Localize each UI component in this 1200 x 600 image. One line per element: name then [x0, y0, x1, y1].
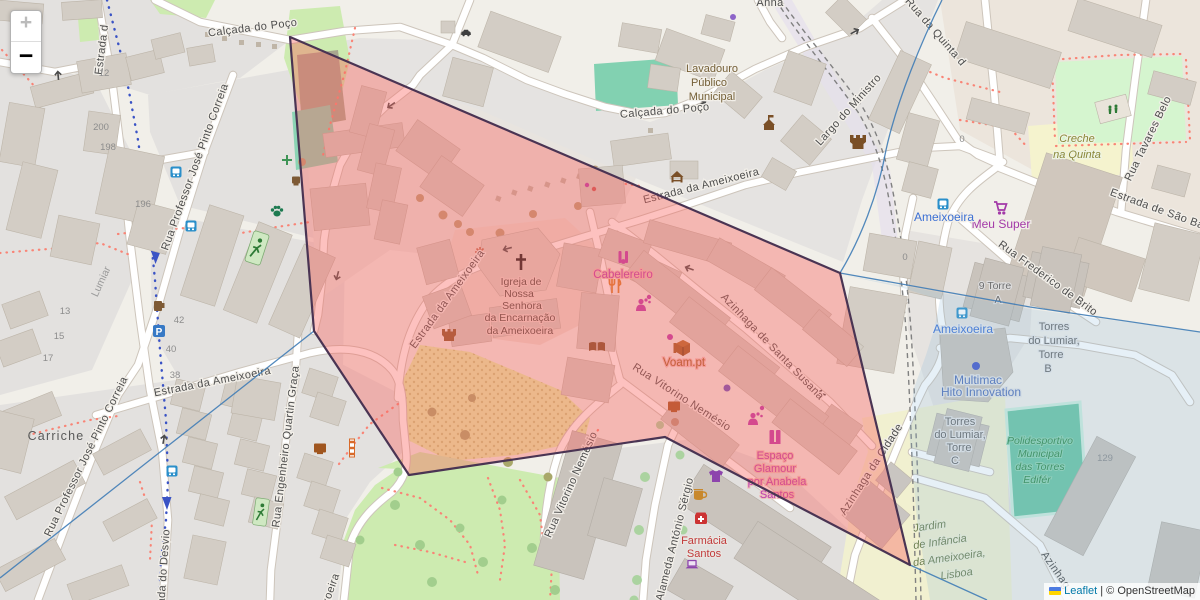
svg-text:Farmácia: Farmácia — [681, 535, 728, 547]
svg-text:15: 15 — [54, 331, 65, 342]
svg-text:12: 12 — [99, 68, 110, 79]
svg-text:200: 200 — [93, 122, 109, 133]
svg-text:P: P — [156, 327, 163, 338]
svg-text:0: 0 — [959, 134, 964, 145]
svg-text:na Quinta: na Quinta — [1053, 149, 1101, 161]
svg-text:Lavadouro: Lavadouro — [686, 63, 738, 75]
svg-text:Santos: Santos — [687, 548, 722, 560]
svg-text:Carriche: Carriche — [28, 429, 85, 443]
svg-text:196: 196 — [135, 199, 151, 210]
svg-text:17: 17 — [43, 353, 54, 364]
svg-text:Ameixoeira: Ameixoeira — [914, 210, 974, 224]
svg-text:42: 42 — [174, 315, 185, 326]
svg-text:0: 0 — [902, 252, 907, 263]
svg-text:Municipal: Municipal — [689, 91, 735, 103]
svg-text:13: 13 — [60, 306, 71, 317]
svg-text:9 Torre: 9 Torre — [979, 280, 1012, 292]
svg-text:198: 198 — [100, 142, 116, 153]
svg-text:Meu Super: Meu Super — [972, 217, 1031, 231]
svg-text:Anna: Anna — [756, 0, 784, 9]
svg-text:40: 40 — [166, 344, 177, 355]
svg-text:Creche: Creche — [1059, 133, 1094, 145]
svg-text:Público: Público — [691, 77, 727, 89]
svg-text:38: 38 — [170, 370, 181, 381]
